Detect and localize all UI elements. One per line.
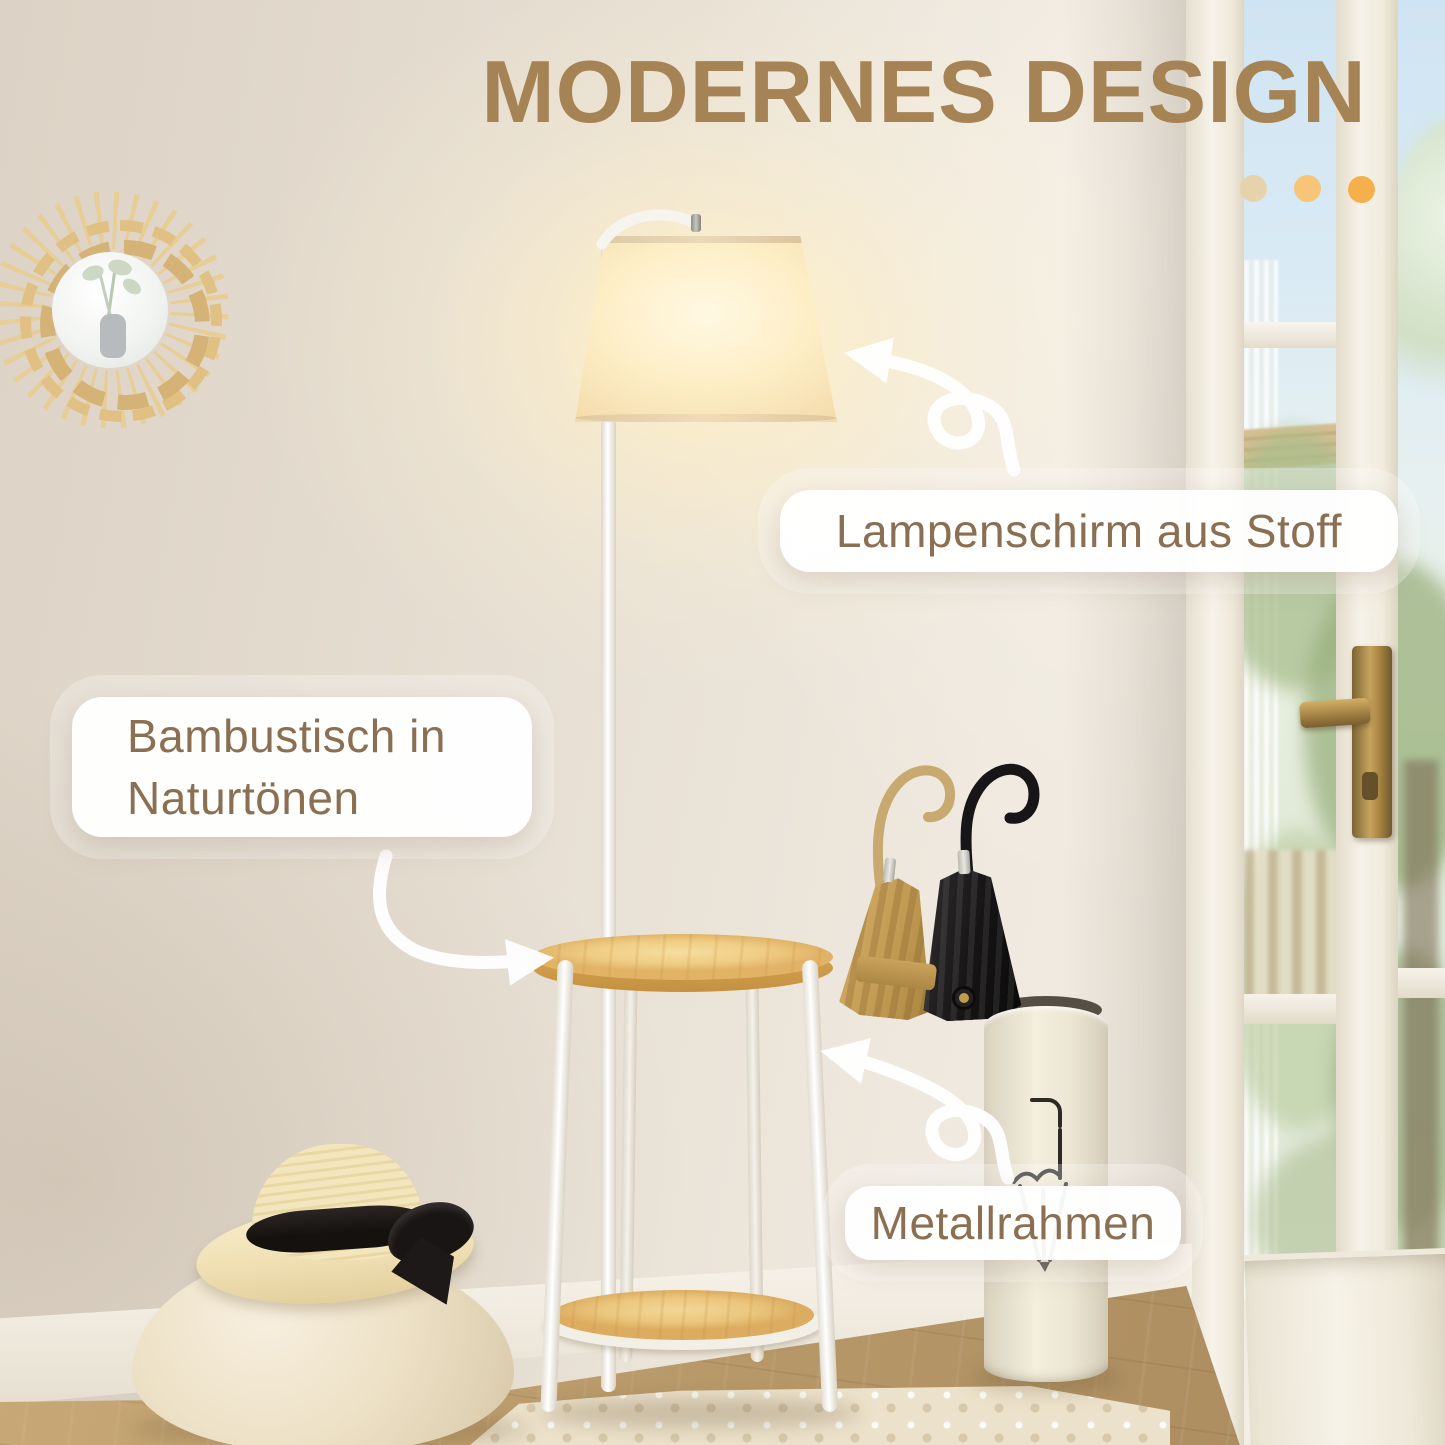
product-marketing-image: Lampenschirm aus Stoff Bambustisch in Na… — [0, 0, 1445, 1445]
callout-table-line1: Bambustisch in — [127, 705, 446, 767]
door-mullion-horizontal — [1244, 994, 1336, 1024]
bamboo-lower-shelf — [552, 1290, 814, 1340]
callout-frame: Metallrahmen — [845, 1186, 1181, 1260]
reflected-vase — [100, 314, 126, 358]
lamp-finial — [691, 214, 701, 232]
callout-lampshade-label: Lampenschirm aus Stoff — [836, 504, 1342, 558]
door-frame-stile — [1186, 0, 1244, 1445]
door-handle-icon — [1299, 698, 1371, 729]
callout-lampshade: Lampenschirm aus Stoff — [780, 490, 1398, 572]
callout-table: Bambustisch in Naturtönen — [72, 697, 532, 837]
black-umbrella-ferrule — [957, 850, 970, 875]
door-lock-cylinder — [1362, 772, 1378, 800]
accent-dot-3 — [1348, 176, 1375, 203]
mirror-glass — [52, 252, 168, 368]
callout-frame-label: Metallrahmen — [871, 1196, 1156, 1250]
callout-table-line2: Naturtönen — [127, 767, 360, 829]
fence-through-glass — [1244, 850, 1344, 1000]
tree-trunk-through-glass — [1404, 760, 1438, 1280]
sheer-curtain — [1244, 260, 1278, 1300]
reflected-leaf — [120, 275, 144, 297]
accent-dot-1 — [1240, 175, 1267, 202]
page-title: MODERNES DESIGN — [450, 46, 1398, 138]
accent-dot-2 — [1294, 175, 1321, 202]
reflected-leaf — [106, 257, 133, 278]
door-handle-plate — [1352, 646, 1392, 838]
door-mullion-horizontal — [1398, 968, 1445, 998]
black-umbrella-button — [952, 986, 976, 1010]
bamboo-table-top — [533, 934, 833, 980]
door-lower-panel — [1244, 1248, 1445, 1445]
fabric-lampshade — [575, 236, 837, 422]
table-floor-shadow — [540, 1398, 860, 1428]
sun-mirror-icon — [0, 188, 232, 432]
door-mullion-horizontal — [1244, 322, 1336, 348]
